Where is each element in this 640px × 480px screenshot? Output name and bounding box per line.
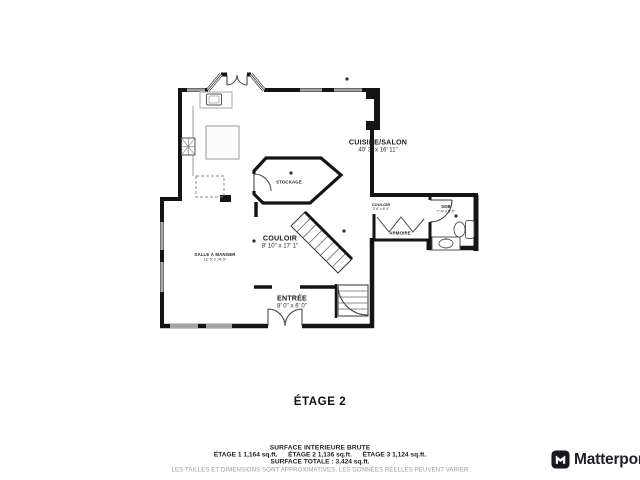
floor-plan-drawing: [0, 0, 640, 480]
staircase-main: [291, 212, 352, 273]
room-label-salle-a-manger: SALLE À MANGER 12' 5" x 14' 9": [194, 252, 235, 262]
room-label-armoire: ARMOIRE: [389, 230, 411, 236]
stove: [182, 138, 196, 155]
room-dims: 8' 0" x 6' 0": [277, 303, 307, 311]
room-dims: 40' 3" x 16' 11": [349, 147, 407, 155]
room-label-cuisine-salon: CUISINE/SALON 40' 3" x 16' 11": [349, 138, 407, 155]
room-dims: 8' 10" x 17' 1": [262, 243, 299, 251]
staircase-lower: [338, 285, 368, 316]
floor-area-etage-3: ÉTAGE 3 1,124 sq.ft.: [362, 451, 426, 459]
matterport-logo-text: Matterport: [574, 451, 640, 469]
room-name: COULOIR: [262, 234, 299, 243]
kitchen-island: [206, 126, 239, 159]
room-label-sdb: SDB 7' 4" x 5' 0": [437, 204, 455, 214]
kitchen-fixtures: [182, 92, 240, 197]
chimney: [366, 88, 380, 130]
room-name: ENTRÉE: [277, 294, 307, 303]
room-name: ARMOIRE: [389, 230, 411, 236]
matterport-logo: Matterport: [551, 450, 640, 469]
room-name: STOCKAGE: [276, 179, 302, 185]
front-entry-doors: [268, 309, 302, 326]
bathroom-fixtures: [432, 221, 474, 251]
floor-title: ÉTAGE 2: [0, 396, 640, 408]
dashed-fixture-outline: [196, 176, 224, 197]
surface-summary: SURFACE INTERIEURE BRUTE ÉTAGE 1 1,164 s…: [172, 444, 469, 473]
bay-double-doors: [227, 75, 247, 85]
room-dims: 7' 4" x 5' 0": [437, 209, 455, 214]
room-dims: 3' 6" x 8' 4": [372, 207, 391, 211]
floorplan-page: CUISINE/SALON 40' 3" x 16' 11" STOCKAGE …: [0, 0, 640, 480]
room-label-entree: ENTRÉE 8' 0" x 6' 0": [277, 294, 307, 311]
toilet-bowl: [454, 222, 465, 237]
disclaimer: LES TAILLES ET DIMENSIONS SONT APPROXIMA…: [172, 467, 469, 474]
room-name: CUISINE/SALON: [349, 138, 407, 147]
floor-area-etage-1: ÉTAGE 1 1,164 sq.ft.: [214, 451, 278, 459]
room-label-couloir: COULOIR 8' 10" x 17' 1": [262, 234, 299, 251]
room-label-couloir-2: COULOIR 3' 6" x 8' 4": [372, 203, 391, 212]
surface-total: SURFACE TOTALE : 3,424 sq.ft.: [172, 458, 469, 465]
vanity-sink: [439, 239, 453, 248]
room-label-stockage: STOCKAGE: [276, 179, 302, 185]
matterport-logo-icon: [551, 450, 570, 469]
toilet-tank: [466, 221, 475, 239]
room-dims: 12' 5" x 14' 9": [194, 257, 235, 262]
